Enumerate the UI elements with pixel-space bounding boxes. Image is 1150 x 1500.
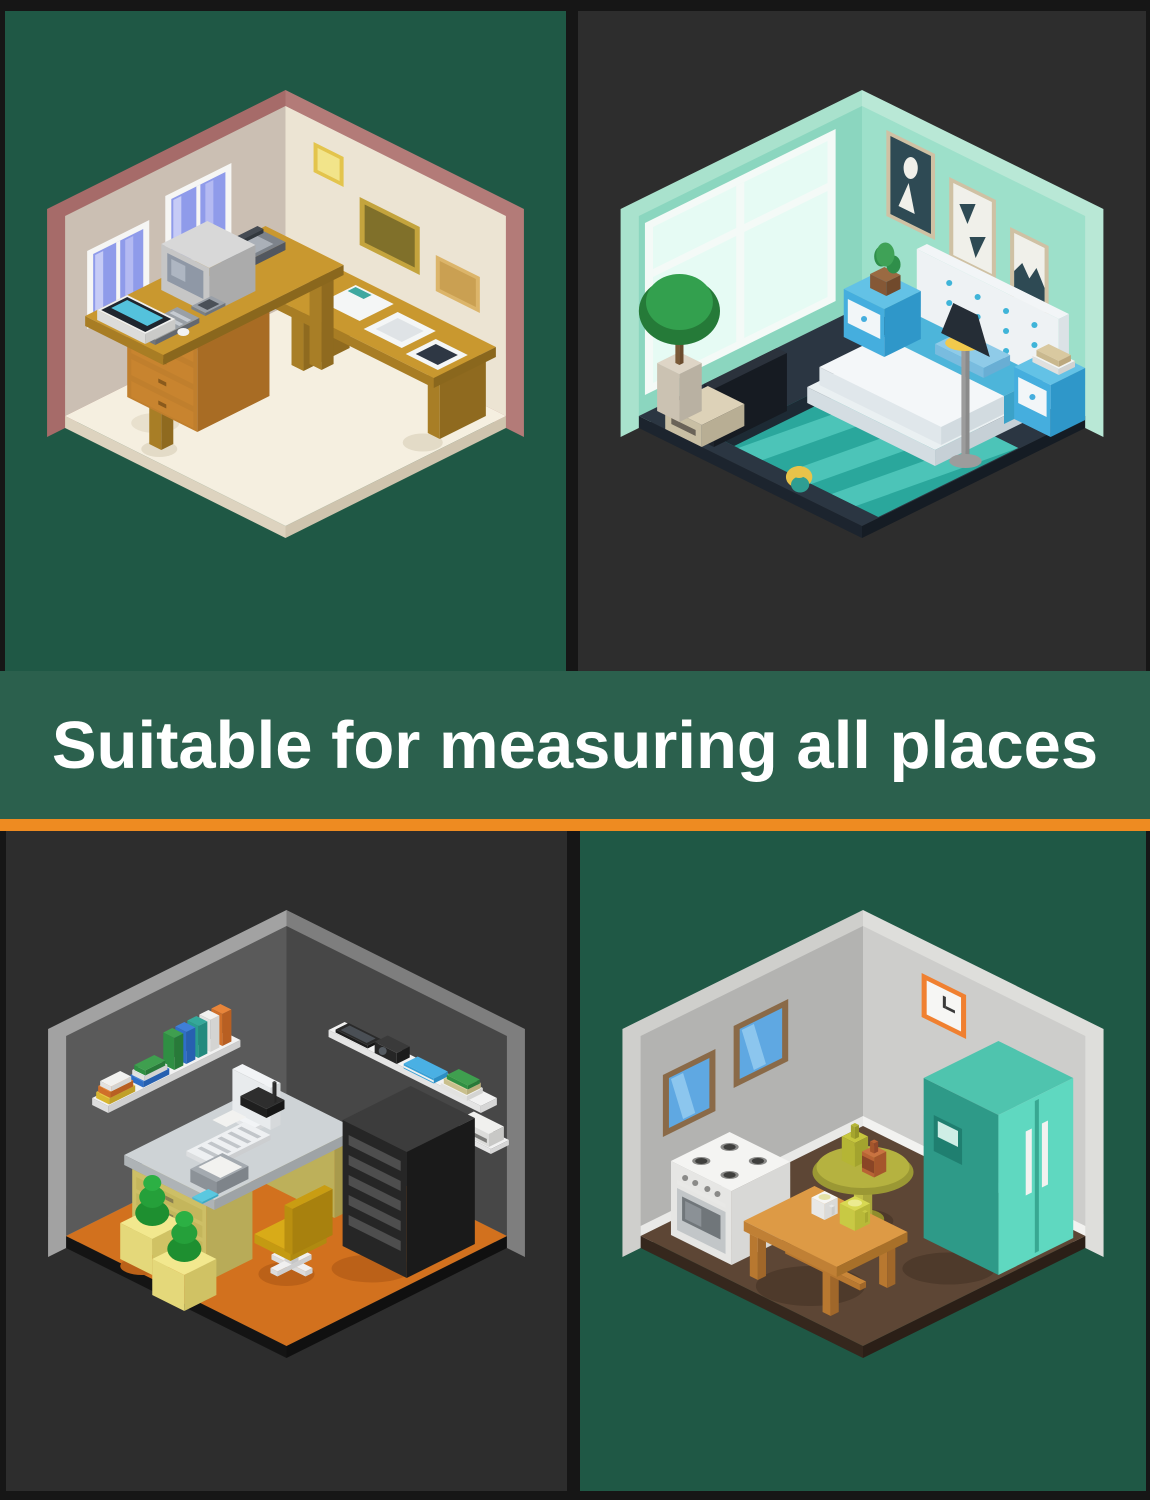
banner-title: Suitable for measuring all places	[52, 707, 1098, 784]
kitchen-panel	[580, 831, 1146, 1491]
accent-stripe	[0, 819, 1150, 831]
workspace-illustration	[6, 831, 567, 1491]
marketing-image: Suitable for measuring all places	[0, 0, 1150, 1500]
kitchen-illustration	[580, 831, 1146, 1491]
bedroom-panel	[578, 11, 1146, 671]
office-room-illustration	[5, 11, 566, 671]
office-room-panel	[5, 11, 566, 671]
bedroom-illustration	[578, 11, 1146, 671]
workspace-panel	[6, 831, 567, 1491]
banner: Suitable for measuring all places	[0, 671, 1150, 819]
